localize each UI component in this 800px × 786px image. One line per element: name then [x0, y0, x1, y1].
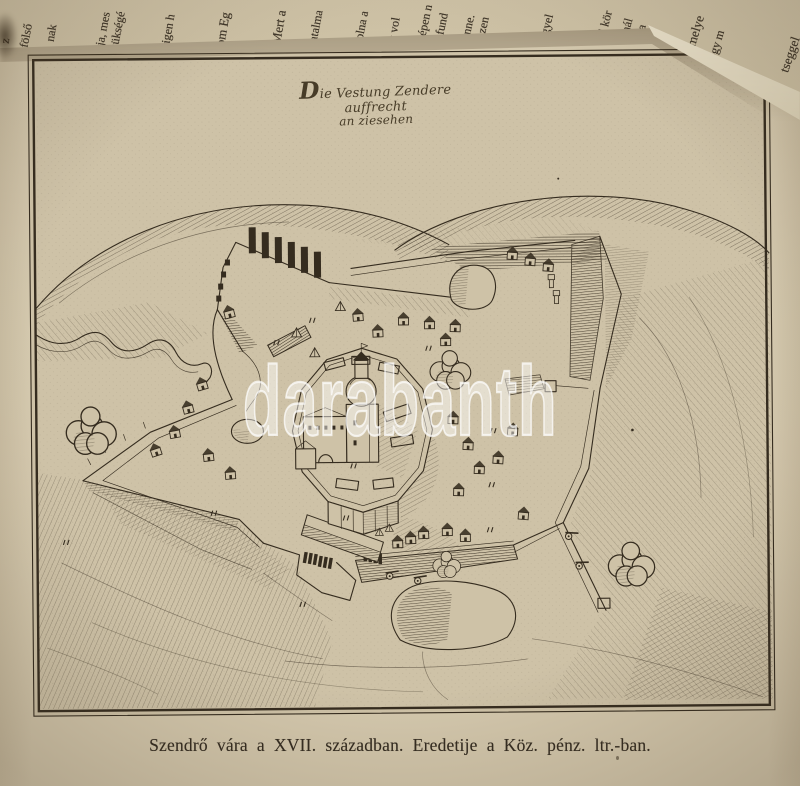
prev-page-text-fragment: nak [43, 23, 61, 43]
paper-speck [616, 756, 619, 760]
prev-page-text-fragment: fölső [17, 23, 36, 49]
gutter-shadow [0, 12, 18, 60]
cartouche: Die Vestung Zendere auffrecht an ziesehe… [275, 73, 477, 131]
engraving-plate: Die Vestung Zendere auffrecht an ziesehe… [0, 0, 800, 786]
prev-page-text-fragment: igen h [159, 13, 179, 45]
plate-caption: Szendrő vára a XVII. században. Eredetij… [0, 735, 800, 756]
book-page-photo: Die Vestung Zendere auffrecht an ziesehe… [0, 0, 800, 786]
prev-page-text-fragment: tseggel [776, 35, 800, 75]
